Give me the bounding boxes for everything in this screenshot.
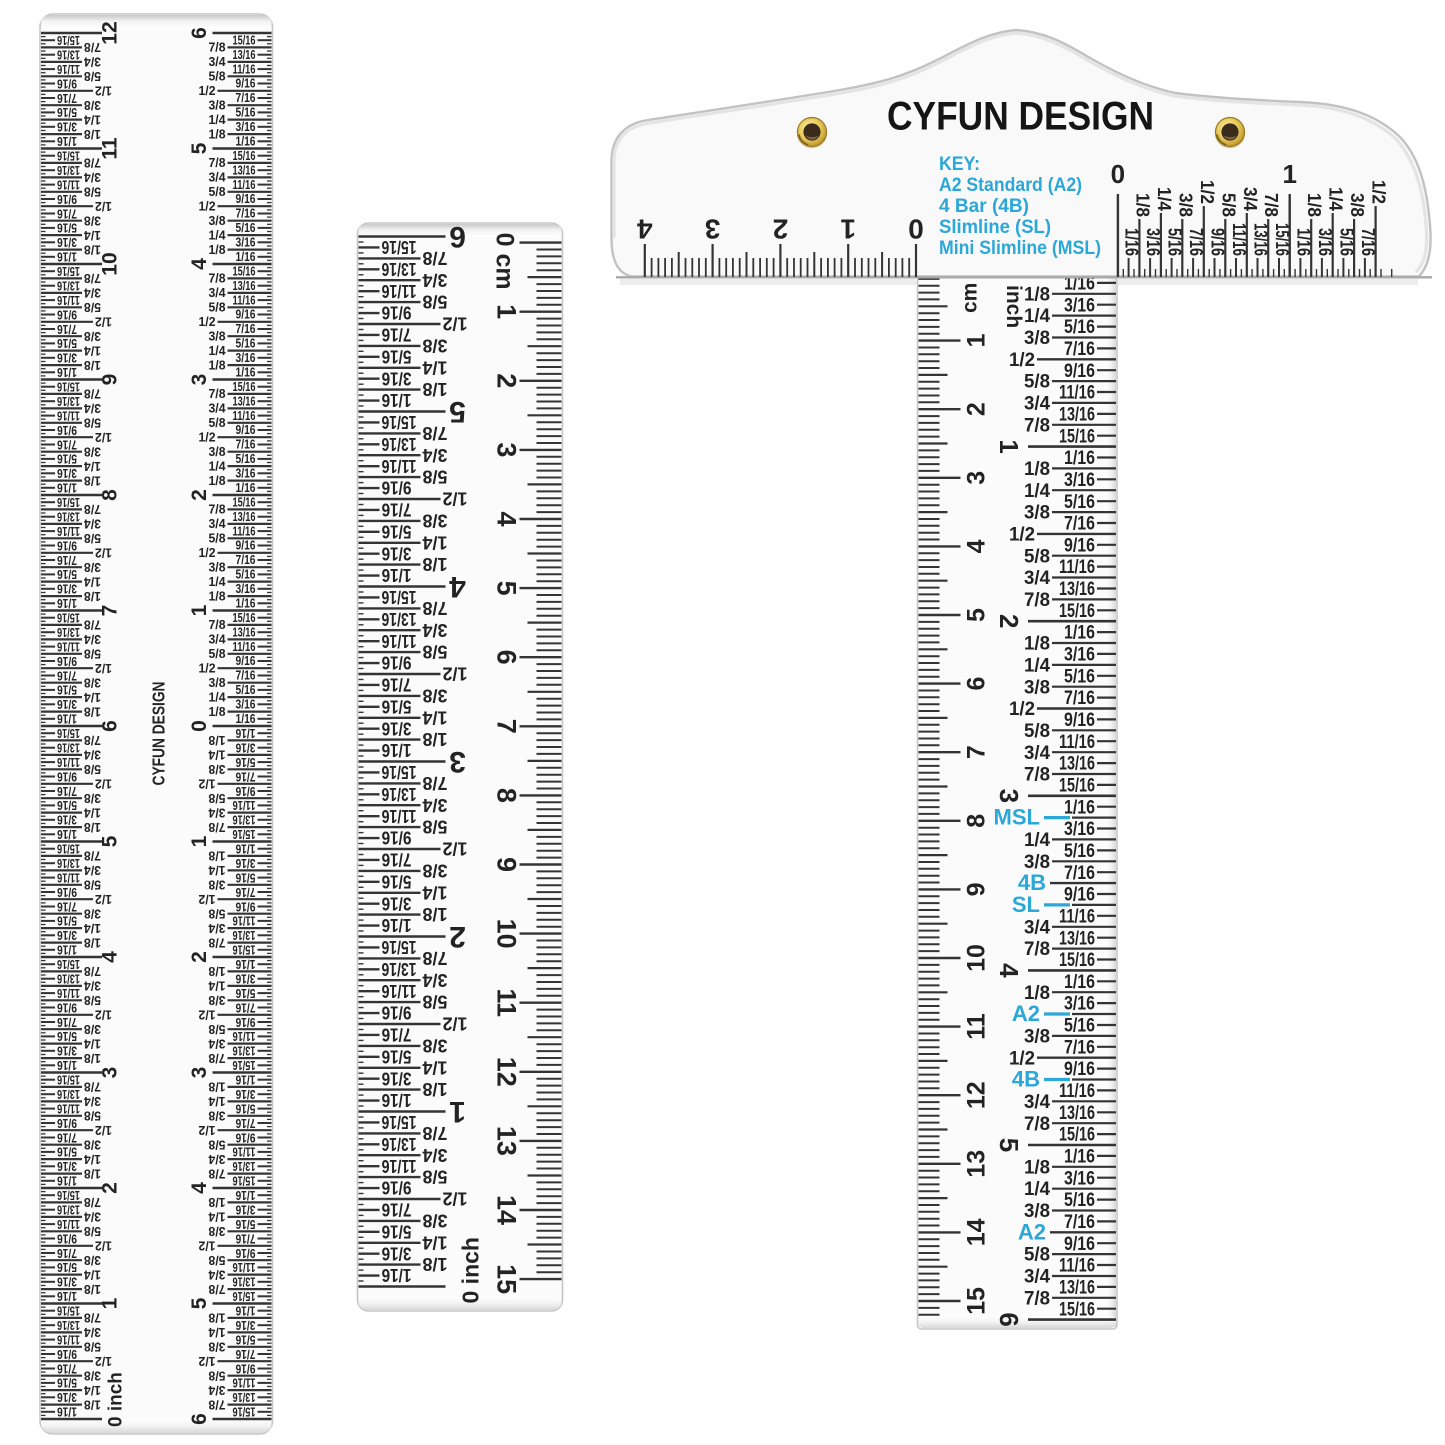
svg-text:5/16: 5/16: [236, 452, 256, 466]
svg-text:9: 9: [99, 374, 122, 386]
svg-text:1/2: 1/2: [95, 84, 112, 98]
svg-text:5/8: 5/8: [208, 1022, 225, 1036]
svg-text:11/16: 11/16: [233, 293, 256, 307]
svg-text:1/16: 1/16: [57, 1405, 77, 1419]
svg-text:9/16: 9/16: [382, 1003, 412, 1024]
svg-text:7/8: 7/8: [209, 272, 226, 286]
svg-text:Mini Slimline (MSL): Mini Slimline (MSL): [939, 237, 1101, 259]
svg-text:0 cm: 0 cm: [491, 233, 519, 290]
svg-text:13/16: 13/16: [382, 1134, 417, 1155]
svg-text:7/8: 7/8: [84, 1080, 101, 1094]
svg-text:7/16: 7/16: [235, 1231, 255, 1245]
svg-text:5/8: 5/8: [209, 301, 226, 315]
svg-text:1/2: 1/2: [443, 489, 468, 510]
svg-text:15: 15: [492, 1264, 522, 1294]
svg-text:3/4: 3/4: [84, 748, 101, 762]
svg-text:2: 2: [994, 614, 1024, 628]
svg-text:1/4: 1/4: [422, 1057, 448, 1078]
svg-text:7/16: 7/16: [57, 206, 77, 220]
svg-text:7/16: 7/16: [382, 1025, 412, 1046]
svg-text:4: 4: [188, 258, 211, 270]
svg-text:1/2: 1/2: [199, 430, 216, 444]
svg-text:13/16: 13/16: [1059, 1278, 1095, 1299]
svg-text:1/2: 1/2: [198, 1354, 215, 1368]
svg-text:A2: A2: [1018, 1219, 1046, 1244]
svg-text:13/16: 13/16: [57, 972, 80, 986]
svg-text:1/4: 1/4: [1024, 1179, 1050, 1200]
svg-text:3/8: 3/8: [423, 1036, 448, 1057]
svg-text:13: 13: [963, 1150, 991, 1178]
svg-text:1/4: 1/4: [209, 459, 226, 473]
svg-text:5/16: 5/16: [382, 521, 412, 542]
svg-text:3/8: 3/8: [1024, 503, 1050, 524]
svg-text:9/16: 9/16: [236, 423, 256, 437]
svg-text:13/16: 13/16: [1059, 579, 1095, 600]
svg-text:11/16: 11/16: [233, 524, 256, 538]
svg-text:3/8: 3/8: [209, 98, 226, 112]
svg-text:5/16: 5/16: [236, 106, 256, 120]
svg-text:3/8: 3/8: [209, 676, 226, 690]
svg-text:1/16: 1/16: [235, 1188, 255, 1202]
svg-text:13/16: 13/16: [57, 1087, 80, 1101]
svg-text:1/4: 1/4: [422, 532, 448, 553]
svg-text:5/16: 5/16: [57, 105, 77, 119]
svg-text:5/16: 5/16: [235, 986, 255, 1000]
svg-text:1/8: 1/8: [1132, 193, 1152, 217]
svg-text:1/16: 1/16: [382, 740, 412, 761]
svg-text:11: 11: [963, 1013, 991, 1040]
svg-text:3/4: 3/4: [1024, 1092, 1050, 1113]
svg-text:1/2: 1/2: [199, 199, 216, 213]
svg-text:5/16: 5/16: [236, 221, 256, 235]
svg-text:7/8: 7/8: [208, 1397, 225, 1411]
svg-text:1/8: 1/8: [209, 127, 226, 141]
svg-text:11/16: 11/16: [57, 177, 80, 191]
svg-text:2: 2: [963, 402, 991, 416]
svg-text:5/8: 5/8: [84, 993, 101, 1007]
svg-text:6: 6: [188, 1413, 211, 1425]
svg-text:1/2: 1/2: [199, 84, 216, 98]
svg-text:5/8: 5/8: [209, 532, 226, 546]
svg-text:5/16: 5/16: [57, 567, 77, 581]
svg-text:3/16: 3/16: [382, 893, 412, 914]
svg-text:2: 2: [773, 214, 789, 245]
svg-text:13/16: 13/16: [232, 1044, 255, 1058]
svg-text:11/16: 11/16: [382, 806, 417, 827]
svg-text:13/16: 13/16: [232, 1275, 255, 1289]
svg-text:1/8: 1/8: [1024, 284, 1050, 305]
svg-text:7/16: 7/16: [382, 1200, 412, 1221]
svg-text:3/16: 3/16: [57, 120, 77, 134]
svg-text:5/16: 5/16: [57, 1145, 77, 1159]
svg-text:5/8: 5/8: [84, 1109, 101, 1123]
svg-text:1/4: 1/4: [84, 574, 101, 588]
svg-text:SL: SL: [1012, 892, 1040, 917]
svg-text:1/8: 1/8: [423, 1254, 448, 1275]
svg-text:1/16: 1/16: [1064, 972, 1095, 993]
svg-text:9/16: 9/16: [236, 308, 256, 322]
svg-text:7/8: 7/8: [423, 773, 448, 794]
svg-text:5/8: 5/8: [423, 467, 448, 488]
svg-text:5/16: 5/16: [236, 337, 256, 351]
svg-text:11/16: 11/16: [232, 914, 255, 928]
svg-text:11: 11: [492, 988, 522, 1017]
svg-text:5/8: 5/8: [1024, 372, 1050, 393]
svg-text:15/16: 15/16: [57, 495, 80, 509]
svg-text:11/16: 11/16: [1059, 557, 1095, 578]
svg-text:1/16: 1/16: [382, 1090, 412, 1111]
svg-text:3/8: 3/8: [84, 1369, 101, 1383]
svg-text:7/8: 7/8: [423, 1123, 448, 1144]
svg-text:7/16: 7/16: [235, 1116, 255, 1130]
svg-text:3/8: 3/8: [209, 214, 226, 228]
svg-text:5/16: 5/16: [57, 452, 77, 466]
svg-text:1/4: 1/4: [209, 690, 226, 704]
svg-text:3/16: 3/16: [57, 1390, 77, 1404]
svg-text:5/16: 5/16: [57, 1376, 77, 1390]
svg-text:3/16: 3/16: [57, 1044, 77, 1058]
svg-text:15/16: 15/16: [57, 1304, 80, 1318]
svg-text:5/8: 5/8: [1024, 1245, 1050, 1266]
svg-text:9/16: 9/16: [235, 1130, 255, 1144]
svg-text:1/8: 1/8: [84, 358, 101, 372]
svg-text:12: 12: [963, 1081, 991, 1109]
svg-text:12: 12: [492, 1057, 522, 1087]
svg-text:1/16: 1/16: [1064, 1147, 1095, 1168]
svg-text:3/16: 3/16: [236, 236, 256, 250]
svg-text:1/4: 1/4: [208, 863, 225, 877]
svg-text:13/16: 13/16: [57, 856, 80, 870]
svg-text:5/8: 5/8: [1024, 721, 1050, 742]
svg-text:1/4: 1/4: [84, 805, 101, 819]
svg-text:3/4: 3/4: [208, 921, 225, 935]
svg-text:1/16: 1/16: [382, 390, 412, 411]
svg-text:7/8: 7/8: [209, 41, 226, 55]
svg-text:9/16: 9/16: [235, 1246, 255, 1260]
svg-text:2: 2: [188, 489, 211, 501]
svg-text:11/16: 11/16: [57, 293, 80, 307]
svg-text:1/4: 1/4: [208, 1094, 225, 1108]
svg-text:13/16: 13/16: [233, 48, 256, 62]
svg-text:11/16: 11/16: [1059, 732, 1095, 753]
svg-text:11/16: 11/16: [57, 524, 80, 538]
svg-text:5/16: 5/16: [382, 1046, 412, 1067]
svg-text:13/16: 13/16: [57, 625, 80, 639]
svg-text:7: 7: [963, 745, 991, 759]
svg-text:6: 6: [492, 650, 522, 665]
svg-text:3/16: 3/16: [1064, 994, 1095, 1015]
svg-text:11/16: 11/16: [382, 631, 417, 652]
svg-text:3/16: 3/16: [236, 467, 256, 481]
svg-text:1/4: 1/4: [1024, 306, 1050, 327]
svg-text:1/2: 1/2: [1197, 180, 1217, 204]
svg-text:5/16: 5/16: [57, 914, 77, 928]
svg-text:7/8: 7/8: [208, 935, 225, 949]
svg-text:3/4: 3/4: [208, 805, 225, 819]
svg-text:11/16: 11/16: [57, 986, 80, 1000]
svg-text:15/16: 15/16: [232, 1289, 255, 1303]
svg-text:5/16: 5/16: [1064, 1190, 1095, 1211]
svg-text:1/4: 1/4: [209, 228, 226, 242]
svg-text:3/8: 3/8: [423, 336, 448, 357]
svg-text:3/8: 3/8: [423, 686, 448, 707]
svg-text:7/8: 7/8: [1024, 590, 1050, 611]
svg-text:11/16: 11/16: [57, 62, 80, 76]
svg-text:1/2: 1/2: [199, 546, 216, 560]
svg-text:3: 3: [963, 471, 991, 485]
svg-text:3/4: 3/4: [1024, 917, 1050, 938]
svg-text:3/16: 3/16: [382, 1068, 412, 1089]
svg-text:8: 8: [492, 788, 522, 803]
svg-text:3/8: 3/8: [84, 907, 101, 921]
svg-text:9/16: 9/16: [57, 76, 77, 90]
svg-text:3/4: 3/4: [84, 517, 101, 531]
svg-text:13/16: 13/16: [233, 394, 256, 408]
svg-text:1/8: 1/8: [209, 705, 226, 719]
svg-text:0 inch: 0 inch: [106, 1372, 127, 1427]
svg-text:13/16: 13/16: [382, 434, 417, 455]
svg-text:0: 0: [908, 214, 924, 245]
svg-text:3/4: 3/4: [208, 1152, 225, 1166]
svg-text:3/8: 3/8: [84, 214, 101, 228]
svg-text:13: 13: [492, 1126, 522, 1156]
svg-text:4: 4: [188, 1182, 211, 1194]
svg-text:1: 1: [449, 1095, 466, 1128]
svg-text:7/16: 7/16: [57, 1015, 77, 1029]
svg-text:1/4: 1/4: [422, 1232, 448, 1253]
svg-text:13/16: 13/16: [232, 813, 255, 827]
svg-text:3: 3: [705, 214, 721, 245]
svg-text:15/16: 15/16: [1059, 950, 1095, 971]
svg-text:Slimline (SL): Slimline (SL): [939, 216, 1051, 238]
svg-text:13/16: 13/16: [232, 1159, 255, 1173]
svg-text:11/16: 11/16: [382, 1156, 417, 1177]
svg-text:5/16: 5/16: [382, 871, 412, 892]
svg-text:3/8: 3/8: [84, 560, 101, 574]
svg-text:6: 6: [99, 720, 122, 732]
svg-text:2: 2: [99, 1182, 122, 1194]
svg-text:1/16: 1/16: [57, 250, 77, 264]
svg-text:3/4: 3/4: [208, 1036, 225, 1050]
svg-text:1/2: 1/2: [198, 777, 215, 791]
svg-text:7/16: 7/16: [382, 500, 412, 521]
svg-text:3/16: 3/16: [236, 351, 256, 365]
svg-text:7/8: 7/8: [1024, 1288, 1050, 1309]
svg-text:13/16: 13/16: [382, 259, 417, 280]
svg-text:1/2: 1/2: [95, 1239, 112, 1253]
svg-text:5/16: 5/16: [1064, 492, 1095, 513]
svg-text:1/2: 1/2: [95, 315, 112, 329]
svg-text:1/2: 1/2: [443, 1014, 468, 1035]
svg-text:5/16: 5/16: [235, 755, 255, 769]
svg-text:7/8: 7/8: [423, 248, 448, 269]
svg-text:11/16: 11/16: [57, 870, 80, 884]
svg-text:1/2: 1/2: [1009, 350, 1035, 371]
svg-text:1/2: 1/2: [1009, 525, 1035, 546]
svg-text:6: 6: [449, 220, 466, 253]
svg-text:7/8: 7/8: [84, 40, 101, 54]
svg-text:3/8: 3/8: [208, 1224, 225, 1238]
svg-text:3/4: 3/4: [422, 970, 448, 991]
svg-text:6: 6: [994, 1312, 1024, 1326]
svg-text:5: 5: [449, 395, 466, 428]
svg-text:1/2: 1/2: [198, 1239, 215, 1253]
svg-text:A2: A2: [1012, 1001, 1040, 1026]
svg-text:10: 10: [963, 944, 991, 972]
svg-text:7/16: 7/16: [57, 322, 77, 336]
svg-text:13/16: 13/16: [57, 1203, 80, 1217]
svg-text:1/16: 1/16: [57, 1174, 77, 1188]
svg-text:1/4: 1/4: [422, 357, 448, 378]
svg-text:5/8: 5/8: [209, 647, 226, 661]
svg-text:5/8: 5/8: [1024, 546, 1050, 567]
svg-text:1/2: 1/2: [443, 839, 468, 860]
svg-text:6: 6: [188, 27, 211, 39]
svg-text:7/8: 7/8: [84, 502, 101, 516]
svg-text:1/2: 1/2: [95, 199, 112, 213]
svg-text:9/16: 9/16: [57, 538, 77, 552]
svg-text:0 inch: 0 inch: [458, 1237, 484, 1303]
svg-text:1/16: 1/16: [57, 712, 77, 726]
svg-text:3/16: 3/16: [57, 582, 77, 596]
svg-text:1/16: 1/16: [236, 712, 256, 726]
svg-text:1/8: 1/8: [208, 964, 225, 978]
svg-text:15/16: 15/16: [1059, 426, 1095, 447]
svg-text:5: 5: [188, 1297, 211, 1309]
svg-text:9: 9: [492, 857, 522, 872]
svg-text:3/16: 3/16: [1064, 295, 1095, 316]
svg-text:1/16: 1/16: [57, 134, 77, 148]
svg-text:4 Bar (4B): 4 Bar (4B): [939, 195, 1029, 217]
svg-text:3/8: 3/8: [423, 511, 448, 532]
svg-text:7/16: 7/16: [236, 669, 256, 683]
svg-text:3/4: 3/4: [84, 1325, 101, 1339]
svg-text:9/16: 9/16: [1064, 885, 1095, 906]
svg-text:1/2: 1/2: [199, 662, 216, 676]
svg-text:3/8: 3/8: [423, 1211, 448, 1232]
svg-text:3/4: 3/4: [209, 55, 226, 69]
svg-text:11/16: 11/16: [1059, 1256, 1095, 1277]
svg-text:7/8: 7/8: [209, 503, 226, 517]
svg-text:5/16: 5/16: [57, 1029, 77, 1043]
svg-text:1/4: 1/4: [84, 1036, 101, 1050]
svg-text:1/16: 1/16: [236, 597, 256, 611]
svg-text:7/16: 7/16: [235, 885, 255, 899]
svg-text:11/16: 11/16: [382, 456, 417, 477]
svg-text:15/16: 15/16: [382, 412, 417, 433]
svg-text:1/16: 1/16: [235, 842, 255, 856]
svg-text:1/16: 1/16: [235, 1304, 255, 1318]
svg-text:1/16: 1/16: [235, 1073, 255, 1087]
svg-text:9/16: 9/16: [382, 1178, 412, 1199]
svg-text:4: 4: [637, 214, 653, 245]
svg-text:3/8: 3/8: [1347, 193, 1367, 217]
svg-text:7/16: 7/16: [57, 1130, 77, 1144]
svg-text:A2 Standard (A2): A2 Standard (A2): [939, 174, 1082, 196]
svg-text:7/16: 7/16: [1064, 1037, 1095, 1058]
svg-text:9/16: 9/16: [1064, 535, 1095, 556]
svg-text:3/16: 3/16: [236, 120, 256, 134]
svg-text:1/8: 1/8: [1304, 193, 1324, 217]
svg-text:15/16: 15/16: [382, 937, 417, 958]
svg-text:1/16: 1/16: [57, 481, 77, 495]
svg-text:KEY:: KEY:: [939, 153, 980, 175]
svg-text:7/8: 7/8: [208, 820, 225, 834]
svg-text:5/8: 5/8: [84, 1340, 101, 1354]
svg-text:9/16: 9/16: [236, 192, 256, 206]
svg-text:1/8: 1/8: [1024, 634, 1050, 655]
svg-text:9/16: 9/16: [1064, 1059, 1095, 1080]
svg-text:5/8: 5/8: [84, 762, 101, 776]
svg-text:1/16: 1/16: [382, 915, 412, 936]
svg-text:5/8: 5/8: [209, 70, 226, 84]
svg-text:15/16: 15/16: [233, 380, 256, 394]
svg-text:0: 0: [1111, 159, 1125, 189]
svg-text:5/16: 5/16: [1064, 841, 1095, 862]
svg-text:7/8: 7/8: [1024, 1114, 1050, 1135]
svg-text:7/16: 7/16: [1064, 339, 1095, 360]
svg-text:11/16: 11/16: [233, 178, 256, 192]
svg-text:9/16: 9/16: [57, 769, 77, 783]
svg-text:1/2: 1/2: [95, 1008, 112, 1022]
svg-text:13/16: 13/16: [57, 510, 80, 524]
svg-text:1/8: 1/8: [84, 704, 101, 718]
svg-text:5/8: 5/8: [1218, 193, 1238, 217]
svg-text:7/8: 7/8: [84, 271, 101, 285]
svg-text:7/16: 7/16: [1064, 688, 1095, 709]
svg-text:5/16: 5/16: [236, 683, 256, 697]
svg-text:5/16: 5/16: [235, 870, 255, 884]
svg-text:CYFUN DESIGN: CYFUN DESIGN: [887, 95, 1154, 139]
svg-text:13/16: 13/16: [57, 394, 80, 408]
svg-text:7/16: 7/16: [57, 91, 77, 105]
svg-text:3/16: 3/16: [382, 543, 412, 564]
svg-text:3/8: 3/8: [209, 560, 226, 574]
svg-text:7/8: 7/8: [208, 1051, 225, 1065]
svg-text:3/16: 3/16: [235, 1203, 255, 1217]
svg-text:3/8: 3/8: [84, 329, 101, 343]
svg-text:1/8: 1/8: [208, 733, 225, 747]
svg-text:3/16: 3/16: [235, 1087, 255, 1101]
svg-text:5/8: 5/8: [84, 300, 101, 314]
svg-text:3/4: 3/4: [1024, 1267, 1050, 1288]
svg-text:15/16: 15/16: [57, 1073, 80, 1087]
svg-text:9/16: 9/16: [57, 192, 77, 206]
svg-text:3/8: 3/8: [208, 1109, 225, 1123]
svg-text:1/8: 1/8: [423, 729, 448, 750]
svg-text:3/8: 3/8: [1175, 193, 1195, 217]
svg-text:1: 1: [188, 604, 211, 616]
svg-text:11/16: 11/16: [57, 1332, 80, 1346]
svg-text:5/16: 5/16: [382, 696, 412, 717]
svg-text:3/4: 3/4: [1024, 743, 1050, 764]
svg-text:3/4: 3/4: [84, 863, 101, 877]
svg-text:1/4: 1/4: [84, 690, 101, 704]
svg-text:1/2: 1/2: [95, 1123, 112, 1137]
svg-text:5: 5: [994, 1138, 1024, 1152]
svg-text:11/16: 11/16: [232, 1029, 255, 1043]
svg-text:3/4: 3/4: [209, 171, 226, 185]
svg-text:15/16: 15/16: [382, 587, 417, 608]
svg-text:1/8: 1/8: [208, 1311, 225, 1325]
svg-text:3/8: 3/8: [84, 1138, 101, 1152]
svg-text:1/4: 1/4: [84, 1383, 101, 1397]
svg-text:14: 14: [963, 1218, 991, 1246]
svg-text:1/8: 1/8: [209, 243, 226, 257]
svg-text:15/16: 15/16: [57, 611, 80, 625]
svg-text:13/16: 13/16: [382, 784, 417, 805]
svg-text:4: 4: [492, 511, 522, 526]
